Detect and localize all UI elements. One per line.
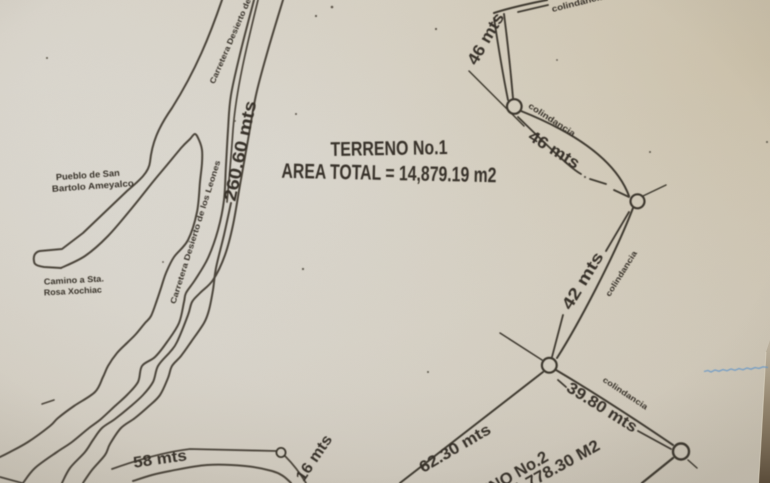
svg-text:AREA TOTAL = 14,879.19 m2: AREA TOTAL = 14,879.19 m2 [281,160,496,187]
svg-text:TERRENO No.1: TERRENO No.1 [330,137,447,161]
